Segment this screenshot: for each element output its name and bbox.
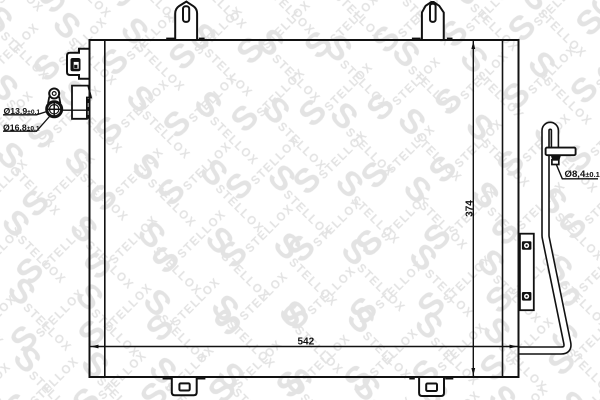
svg-text:Ø8,4±0.1: Ø8,4±0.1 [565, 169, 600, 180]
svg-text:542: 542 [298, 337, 315, 348]
svg-text:374: 374 [464, 200, 475, 217]
